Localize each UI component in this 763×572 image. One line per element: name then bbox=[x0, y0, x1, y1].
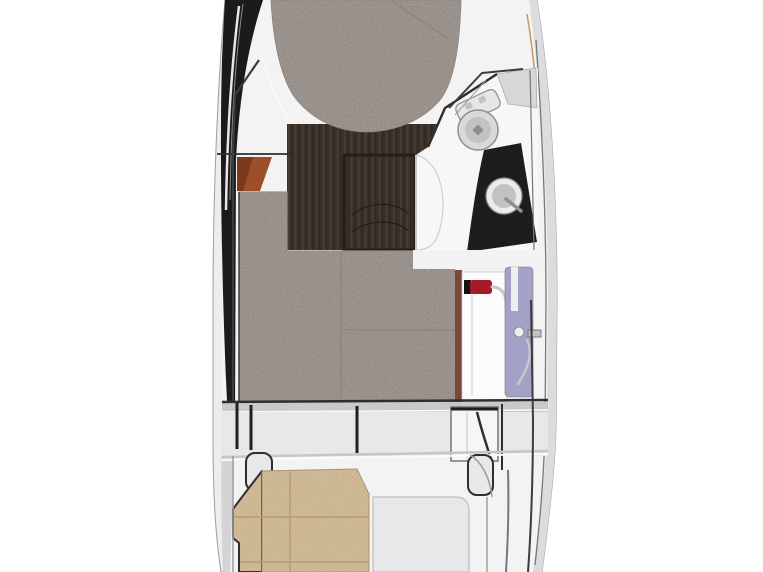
berth-step-notch bbox=[413, 250, 459, 272]
boat-floorplan bbox=[0, 0, 763, 572]
head-door-edge bbox=[415, 155, 417, 250]
locker-bracket bbox=[528, 330, 541, 337]
locker-strap bbox=[511, 267, 518, 311]
boat-floorplan-canvas bbox=[0, 0, 763, 572]
galley-wood-trim bbox=[455, 270, 462, 403]
wood-floor-framed-hatch bbox=[344, 155, 415, 250]
locker-knob bbox=[514, 327, 524, 337]
engine-hatch-panel bbox=[373, 497, 469, 572]
wood-floor-port bbox=[287, 155, 344, 250]
pump-handle-cap bbox=[464, 280, 471, 294]
pump-handle-red bbox=[470, 280, 492, 294]
cockpit-cushion-main bbox=[262, 469, 369, 572]
cockpit-front-wall bbox=[222, 412, 548, 456]
armrest-starboard bbox=[468, 455, 493, 495]
